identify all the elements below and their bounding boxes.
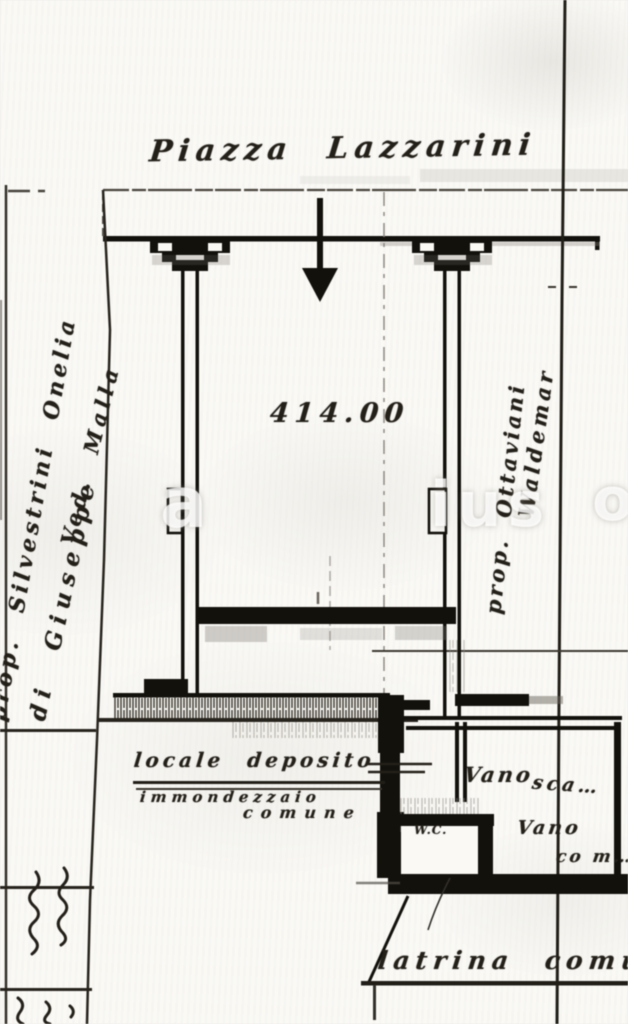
- entrance-arrow: [302, 198, 338, 302]
- cadastral-plan-scan: Piazza Lazzarini 414.00 prop. Silvestrin…: [0, 0, 628, 1024]
- wc-label: W.C.: [414, 824, 447, 836]
- area-number: 414.00: [269, 400, 411, 427]
- bottom-wall-hatched: [98, 679, 418, 738]
- illegible-handwriting: [18, 868, 74, 1024]
- vano1-label: Vano: [463, 764, 535, 785]
- vano1-fragment: sca…: [530, 774, 603, 798]
- deposit-line3: comune: [242, 805, 362, 821]
- vano2-fragment: co m…: [555, 849, 628, 866]
- watermark-fragment-3: o: [592, 470, 628, 530]
- vano2-label: Vano: [516, 819, 582, 838]
- interior-wall: [199, 607, 456, 642]
- deposit-underline: [133, 781, 385, 784]
- street-label: Piazza Lazzarini: [148, 131, 538, 168]
- watermark-fragment-1: a: [160, 468, 207, 538]
- right-boundary-line: [548, 0, 577, 1024]
- watermark-fragment-2: ius: [430, 474, 550, 536]
- deposit-line1: locale deposito: [133, 750, 376, 770]
- latrina-label: latrina comu: [376, 948, 628, 973]
